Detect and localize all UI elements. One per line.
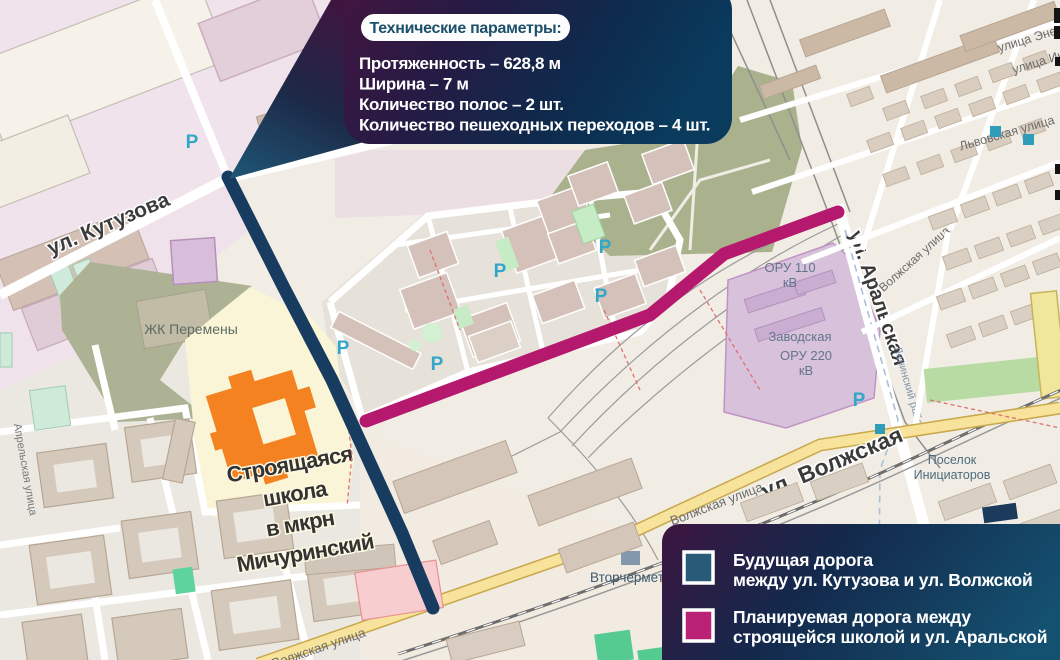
svg-text:P: P	[599, 237, 612, 258]
svg-text:Будущая дорога: Будущая дорога	[733, 550, 873, 570]
svg-text:P: P	[595, 286, 608, 307]
svg-text:Вторчермет: Вторчермет	[590, 570, 664, 585]
svg-text:Количество полос – 2 шт.: Количество полос – 2 шт.	[359, 95, 564, 114]
svg-text:ОРУ 220: ОРУ 220	[780, 348, 832, 363]
svg-text:Ширина – 7 м: Ширина – 7 м	[359, 75, 469, 94]
svg-text:P: P	[337, 338, 350, 359]
svg-text:Технические параметры:: Технические параметры:	[370, 20, 562, 37]
svg-text:Планируемая дорога между: Планируемая дорога между	[733, 607, 971, 627]
svg-text:Поселок: Поселок	[928, 453, 977, 467]
svg-text:P: P	[494, 261, 507, 282]
svg-text:Заводская: Заводская	[768, 329, 831, 344]
svg-text:P: P	[853, 390, 866, 411]
svg-text:кВ: кВ	[783, 275, 797, 290]
svg-text:кВ: кВ	[799, 363, 813, 378]
svg-text:ЖК Перемены: ЖК Перемены	[144, 321, 238, 337]
svg-text:Протяженность – 628,8 м: Протяженность – 628,8 м	[359, 54, 561, 73]
svg-text:P: P	[186, 132, 199, 153]
svg-text:строящейся школой и ул. Аральс: строящейся школой и ул. Аральской	[733, 627, 1047, 647]
svg-text:Инициаторов: Инициаторов	[914, 468, 991, 482]
svg-text:Количество пешеходных переходо: Количество пешеходных переходов – 4 шт.	[359, 116, 710, 135]
svg-text:между ул. Кутузова и ул. Волжс: между ул. Кутузова и ул. Волжской	[733, 570, 1033, 590]
svg-text:P: P	[431, 354, 444, 375]
